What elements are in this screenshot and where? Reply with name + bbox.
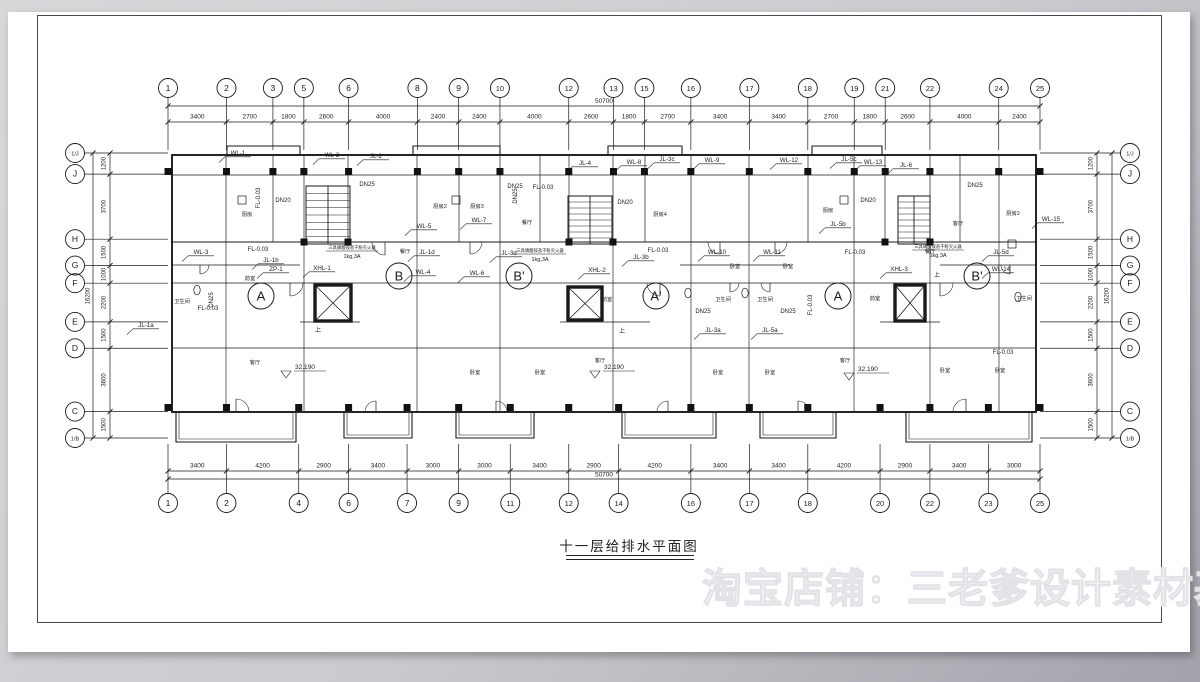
svg-text:4200: 4200 [255,463,270,470]
svg-text:2: 2 [224,498,229,508]
svg-text:8: 8 [415,83,420,93]
svg-text:32.190: 32.190 [858,366,878,373]
svg-text:4000: 4000 [527,114,542,121]
svg-text:1500: 1500 [1089,328,1095,342]
svg-text:JL-3b: JL-3b [633,254,649,261]
svg-text:6: 6 [346,498,351,508]
svg-text:JL-3d: JL-3d [501,250,517,257]
svg-text:3600: 3600 [1089,373,1095,387]
svg-text:1kg,3A: 1kg,3A [531,257,548,263]
axis-bottom: 1246791112141617182022232550700340042002… [159,444,1050,513]
svg-text:JL-3c: JL-3c [659,156,674,163]
svg-text:FL-0.03: FL-0.03 [993,350,1014,356]
svg-text:C: C [72,406,78,416]
svg-text:1800: 1800 [281,114,296,121]
svg-text:2400: 2400 [472,114,487,121]
svg-text:2900: 2900 [586,463,601,470]
svg-text:1200: 1200 [102,156,108,170]
svg-text:A: A [834,289,843,304]
axis-right: 1/JJHGFEDC1/B120037001500100022001500360… [1040,144,1140,448]
svg-text:H: H [1127,234,1133,244]
svg-text:2700: 2700 [824,114,839,121]
svg-text:32.190: 32.190 [604,364,624,371]
svg-text:15: 15 [640,84,648,93]
svg-text:E: E [1127,316,1133,326]
svg-text:12: 12 [565,499,573,508]
svg-text:1500: 1500 [102,417,108,431]
svg-text:FL-0.03: FL-0.03 [845,250,866,256]
svg-text:1500: 1500 [1089,417,1095,431]
svg-text:WL-13: WL-13 [864,159,883,166]
svg-text:DN20: DN20 [617,200,633,206]
svg-text:WL-1: WL-1 [231,150,246,157]
svg-text:25: 25 [1036,84,1044,93]
svg-text:4200: 4200 [837,463,852,470]
svg-text:16200: 16200 [1105,287,1111,304]
svg-text:厨房: 厨房 [823,206,834,214]
svg-text:DN25: DN25 [359,182,375,188]
svg-text:A: A [257,289,266,304]
svg-text:XHL-2: XHL-2 [588,267,606,274]
svg-text:1/J: 1/J [71,152,79,158]
svg-text:16: 16 [687,84,695,93]
svg-text:JL-1d: JL-1d [419,249,435,256]
svg-text:21: 21 [881,84,889,93]
svg-text:2700: 2700 [660,114,675,121]
svg-text:FL-0.03: FL-0.03 [808,294,814,315]
svg-text:卧室: 卧室 [995,366,1006,374]
svg-text:三具磷酸铵盐干粉灭火器: 三具磷酸铵盐干粉灭火器 [328,244,376,251]
svg-text:DN25: DN25 [967,183,983,189]
svg-text:1: 1 [166,83,171,93]
svg-text:WL-12: WL-12 [780,157,799,164]
svg-text:2200: 2200 [1089,295,1095,309]
svg-text:JL-5c: JL-5c [841,156,856,163]
svg-text:2700: 2700 [242,114,257,121]
svg-text:2600: 2600 [319,114,334,121]
svg-text:JL-5a: JL-5a [762,327,778,334]
building-walls [172,146,1036,442]
svg-text:1000: 1000 [102,267,108,281]
unit-circles: ABB'A'AB' [248,263,990,309]
svg-text:3000: 3000 [1007,463,1022,470]
svg-text:FL-0.03: FL-0.03 [256,187,262,208]
svg-text:1/B: 1/B [71,437,80,443]
svg-text:3400: 3400 [771,463,786,470]
svg-text:卧室: 卧室 [783,262,794,270]
structural-columns [165,168,1044,411]
svg-text:客厅: 客厅 [953,219,964,227]
svg-text:卫生间: 卫生间 [174,297,190,305]
watermark-text: 淘宝店铺：三老爹设计素材基地 [702,556,1200,614]
svg-text:23: 23 [984,499,992,508]
svg-text:F: F [1127,278,1132,288]
svg-text:G: G [1127,260,1134,270]
svg-text:F: F [72,278,77,288]
svg-text:18: 18 [804,499,812,508]
svg-text:2900: 2900 [316,463,331,470]
svg-text:FL-0.03: FL-0.03 [648,248,669,254]
svg-text:3400: 3400 [190,463,205,470]
svg-text:卧室: 卧室 [765,368,776,376]
svg-text:16200: 16200 [86,287,92,304]
title-underline-2 [566,559,694,560]
svg-text:WL-14: WL-14 [992,266,1011,273]
drawing-sheet: 1235689101213151617181921222425507003400… [8,12,1190,652]
svg-text:JL-1a: JL-1a [138,322,154,329]
svg-text:16: 16 [687,499,695,508]
svg-text:WL-4: WL-4 [416,269,431,276]
svg-text:餐厅: 餐厅 [400,247,411,255]
svg-text:50700: 50700 [595,98,613,105]
svg-text:3600: 3600 [102,373,108,387]
svg-text:三具磷酸铵盐干粉灭火器: 三具磷酸铵盐干粉灭火器 [914,243,962,250]
svg-text:10: 10 [496,84,504,93]
svg-text:DN25: DN25 [695,309,711,315]
svg-text:DN25: DN25 [780,309,796,315]
svg-text:2400: 2400 [1012,114,1027,121]
svg-text:JL-1b: JL-1b [263,257,279,264]
svg-text:D: D [72,343,78,353]
svg-text:11: 11 [506,499,514,508]
svg-text:WL-3: WL-3 [194,249,209,256]
svg-text:WL-9: WL-9 [705,157,720,164]
svg-text:J: J [1128,169,1132,179]
axis-left: 1/JJHGFEDC1/B120037001500100022001500360… [66,144,169,448]
svg-text:2200: 2200 [102,295,108,309]
svg-text:ZP-1: ZP-1 [269,266,283,273]
svg-text:XHL-1: XHL-1 [313,265,331,272]
svg-text:H: H [72,234,78,244]
svg-text:7: 7 [405,498,410,508]
svg-text:6: 6 [346,83,351,93]
svg-text:22: 22 [926,84,934,93]
svg-text:12: 12 [565,84,573,93]
svg-text:前室: 前室 [870,294,881,302]
svg-text:3400: 3400 [713,114,728,121]
svg-text:客厅: 客厅 [595,356,606,364]
svg-text:上: 上 [315,326,321,334]
svg-text:卫生间: 卫生间 [757,295,773,303]
svg-text:9: 9 [456,498,461,508]
svg-text:3700: 3700 [1089,199,1095,213]
svg-text:5: 5 [302,83,307,93]
svg-text:G: G [72,260,79,270]
svg-text:上: 上 [619,327,625,335]
svg-text:50700: 50700 [595,472,613,479]
svg-text:JL-5d: JL-5d [993,249,1009,256]
svg-text:3: 3 [271,83,276,93]
svg-text:卫生间: 卫生间 [1016,294,1032,302]
svg-text:3700: 3700 [102,199,108,213]
svg-text:JL-6: JL-6 [900,162,913,169]
svg-text:卧室: 卧室 [713,368,724,376]
svg-text:1/B: 1/B [1126,437,1135,443]
svg-text:17: 17 [745,84,753,93]
svg-text:3400: 3400 [371,463,386,470]
svg-text:厨房3: 厨房3 [470,202,484,210]
svg-text:4200: 4200 [648,463,663,470]
svg-text:B: B [395,269,404,284]
svg-text:餐厅: 餐厅 [522,218,533,226]
svg-text:3400: 3400 [771,114,786,121]
svg-text:4000: 4000 [957,114,972,121]
svg-text:DN20: DN20 [275,198,291,204]
svg-text:FL-0.03: FL-0.03 [533,185,554,191]
svg-text:1kg,3A: 1kg,3A [343,254,360,260]
svg-text:JL-4: JL-4 [579,160,592,167]
svg-text:1: 1 [166,498,171,508]
svg-text:厨房2: 厨房2 [433,202,447,210]
svg-text:餐厅: 餐厅 [925,247,936,255]
svg-text:1800: 1800 [622,114,637,121]
svg-text:WL-7: WL-7 [472,217,487,224]
svg-text:3400: 3400 [190,114,205,121]
svg-text:3000: 3000 [426,463,441,470]
svg-text:E: E [72,316,78,326]
svg-text:客厅: 客厅 [250,358,261,366]
svg-text:1500: 1500 [102,245,108,259]
svg-text:2600: 2600 [584,114,599,121]
svg-text:DN20: DN20 [860,198,876,204]
svg-text:WL-11: WL-11 [763,249,781,256]
svg-text:卫生间: 卫生间 [715,295,731,303]
svg-text:C: C [1127,406,1133,416]
svg-text:2900: 2900 [898,463,913,470]
svg-text:DN25: DN25 [513,188,519,204]
svg-text:JL-3a: JL-3a [705,327,721,334]
svg-text:25: 25 [1036,499,1044,508]
svg-text:22: 22 [926,499,934,508]
svg-text:WL-6: WL-6 [470,270,485,277]
svg-text:1800: 1800 [862,114,877,121]
axis-top: 1235689101213151617181921222425507003400… [159,79,1050,151]
svg-text:JL-5b: JL-5b [830,221,846,228]
svg-text:1000: 1000 [1089,267,1095,281]
svg-text:厨房4: 厨房4 [653,210,667,218]
svg-text:20: 20 [876,499,884,508]
title-underline [566,555,694,556]
svg-text:D: D [1127,343,1133,353]
svg-text:3400: 3400 [532,463,547,470]
svg-text:4000: 4000 [376,114,391,121]
svg-text:B': B' [971,269,982,284]
svg-text:13: 13 [609,84,617,93]
svg-text:前室: 前室 [602,295,613,303]
drawing-title: 十一层给排水平面图 [467,535,791,555]
svg-text:1200: 1200 [1089,156,1095,170]
svg-text:A': A' [650,289,661,304]
svg-text:18: 18 [804,84,812,93]
svg-text:3000: 3000 [477,463,492,470]
svg-text:卧室: 卧室 [940,366,951,374]
svg-text:2600: 2600 [900,114,915,121]
svg-text:WL-2: WL-2 [325,152,340,159]
stair-up-labels: 上上上 [315,271,940,335]
viewer-background: 1235689101213151617181921222425507003400… [0,0,1200,682]
svg-text:WL-10: WL-10 [708,249,727,256]
svg-text:上: 上 [934,271,940,279]
svg-text:9: 9 [456,83,461,93]
svg-text:三具磷酸铵盐干粉灭火器: 三具磷酸铵盐干粉灭火器 [516,247,564,254]
svg-text:2: 2 [224,83,229,93]
svg-text:1500: 1500 [1089,245,1095,259]
svg-text:卧室: 卧室 [535,368,546,376]
elevation-markers: 32.19032.19032.190 [281,364,889,380]
svg-text:1/J: 1/J [1126,152,1134,158]
svg-text:卧室: 卧室 [730,262,741,270]
svg-text:3400: 3400 [713,463,728,470]
svg-text:14: 14 [614,499,622,508]
svg-text:厨房2: 厨房2 [1006,209,1020,217]
svg-text:FL-0.03: FL-0.03 [198,306,219,312]
svg-text:WL-8: WL-8 [627,159,642,166]
svg-text:4: 4 [296,498,301,508]
svg-text:B': B' [513,269,524,284]
svg-text:24: 24 [995,84,1003,93]
svg-text:前室: 前室 [245,274,256,282]
svg-text:客厅: 客厅 [840,356,851,364]
svg-text:J: J [73,169,77,179]
svg-text:厨房: 厨房 [242,210,253,218]
svg-text:1500: 1500 [102,328,108,342]
svg-text:JL-2: JL-2 [370,153,383,160]
svg-text:3400: 3400 [952,463,967,470]
svg-text:17: 17 [745,499,753,508]
svg-text:19: 19 [850,84,858,93]
svg-text:XHL-3: XHL-3 [890,266,908,273]
svg-text:FL-0.03: FL-0.03 [248,247,269,253]
svg-text:2400: 2400 [431,114,446,121]
svg-text:WL-5: WL-5 [417,223,432,230]
svg-text:32.190: 32.190 [295,364,315,371]
svg-text:WL-15: WL-15 [1042,216,1061,223]
svg-text:卧室: 卧室 [470,368,481,376]
